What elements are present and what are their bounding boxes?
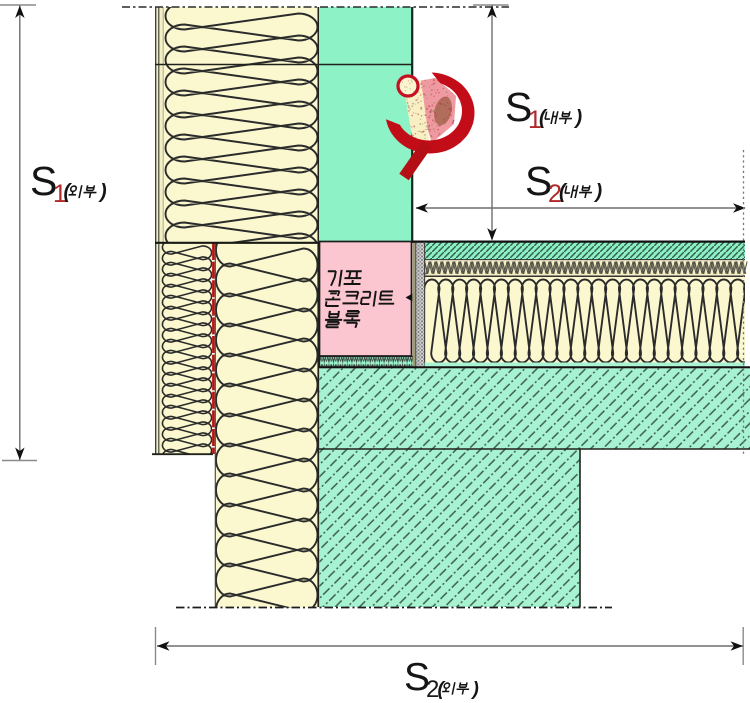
svg-text:): ) <box>98 181 107 203</box>
svg-text:): ) <box>574 107 583 129</box>
svg-text:): ) <box>471 679 479 700</box>
svg-text:): ) <box>594 181 603 203</box>
